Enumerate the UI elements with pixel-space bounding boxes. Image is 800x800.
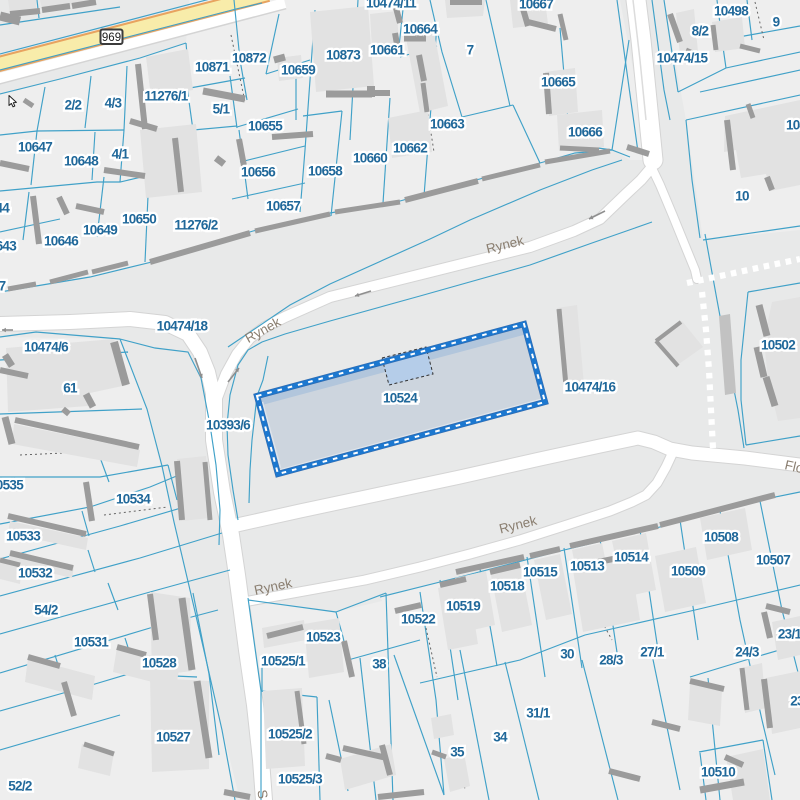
svg-text:10661: 10661 xyxy=(370,43,405,58)
svg-text:10873: 10873 xyxy=(326,48,361,63)
svg-text:10649: 10649 xyxy=(83,223,117,238)
svg-text:10646: 10646 xyxy=(44,234,79,249)
svg-text:10533: 10533 xyxy=(6,529,41,544)
svg-text:10525/3: 10525/3 xyxy=(278,772,323,787)
svg-text:10474/11: 10474/11 xyxy=(366,0,417,11)
svg-text:10650: 10650 xyxy=(122,212,156,227)
svg-text:23/14: 23/14 xyxy=(778,627,800,642)
svg-text:38: 38 xyxy=(372,657,387,672)
svg-text:7: 7 xyxy=(0,279,6,294)
svg-text:10474/16: 10474/16 xyxy=(565,380,617,395)
svg-text:10527: 10527 xyxy=(156,730,190,745)
svg-text:10: 10 xyxy=(735,189,749,204)
svg-text:11276/2: 11276/2 xyxy=(174,218,217,233)
svg-text:10656: 10656 xyxy=(241,165,276,180)
svg-text:10495: 10495 xyxy=(786,118,800,133)
svg-text:4/1: 4/1 xyxy=(112,147,130,162)
svg-text:10474/15: 10474/15 xyxy=(657,51,709,66)
svg-text:10655: 10655 xyxy=(248,119,283,134)
svg-text:10660: 10660 xyxy=(353,151,387,166)
svg-text:10658: 10658 xyxy=(308,164,343,179)
svg-text:10531: 10531 xyxy=(74,635,109,650)
svg-text:10643: 10643 xyxy=(0,239,17,254)
svg-text:10513: 10513 xyxy=(570,559,605,574)
svg-text:10515: 10515 xyxy=(523,565,558,580)
svg-text:10648: 10648 xyxy=(64,154,99,169)
svg-text:10532: 10532 xyxy=(18,566,52,581)
svg-text:54/2: 54/2 xyxy=(34,603,58,618)
svg-text:10524: 10524 xyxy=(383,391,418,406)
svg-text:10528: 10528 xyxy=(142,656,177,671)
svg-text:10523: 10523 xyxy=(306,630,341,645)
svg-text:27/1: 27/1 xyxy=(640,645,665,660)
svg-text:7: 7 xyxy=(467,43,474,58)
svg-text:10665: 10665 xyxy=(541,75,576,90)
svg-text:10474/6: 10474/6 xyxy=(24,340,69,355)
svg-text:9: 9 xyxy=(773,15,780,30)
svg-text:34: 34 xyxy=(493,730,508,745)
svg-text:10498: 10498 xyxy=(714,4,749,19)
svg-text:10502: 10502 xyxy=(761,338,795,353)
svg-text:10666: 10666 xyxy=(568,125,603,140)
svg-text:10522: 10522 xyxy=(401,612,435,627)
svg-text:10663: 10663 xyxy=(430,117,465,132)
svg-text:8/2: 8/2 xyxy=(692,24,709,39)
svg-text:10872: 10872 xyxy=(232,51,266,66)
svg-text:31/1: 31/1 xyxy=(526,706,551,721)
svg-text:24/3: 24/3 xyxy=(735,645,760,660)
svg-text:969: 969 xyxy=(102,32,121,44)
svg-text:30: 30 xyxy=(560,647,574,662)
svg-text:28/3: 28/3 xyxy=(599,653,624,668)
svg-text:10647: 10647 xyxy=(18,140,52,155)
svg-text:10644: 10644 xyxy=(0,201,10,216)
svg-text:10507: 10507 xyxy=(756,553,790,568)
svg-text:2/2: 2/2 xyxy=(65,98,82,113)
svg-text:23: 23 xyxy=(790,694,800,709)
svg-text:10509: 10509 xyxy=(671,564,705,579)
svg-text:35: 35 xyxy=(450,745,465,760)
svg-text:61: 61 xyxy=(63,381,78,396)
svg-text:10534: 10534 xyxy=(116,492,151,507)
svg-text:10664: 10664 xyxy=(403,22,438,37)
svg-text:10510: 10510 xyxy=(701,765,735,780)
svg-text:4/3: 4/3 xyxy=(105,96,123,111)
svg-text:10657: 10657 xyxy=(266,199,300,214)
svg-text:10659: 10659 xyxy=(281,63,315,78)
svg-text:52/2: 52/2 xyxy=(8,779,32,794)
svg-text:10514: 10514 xyxy=(614,550,649,565)
svg-text:11276/1: 11276/1 xyxy=(144,89,188,104)
svg-text:10662: 10662 xyxy=(393,141,427,156)
svg-text:10871: 10871 xyxy=(195,60,230,75)
svg-text:10535: 10535 xyxy=(0,478,24,493)
svg-text:10667: 10667 xyxy=(519,0,553,12)
svg-text:10474/18: 10474/18 xyxy=(157,319,209,334)
svg-text:10525/2: 10525/2 xyxy=(268,727,312,742)
svg-text:10508: 10508 xyxy=(704,530,739,545)
svg-text:10519: 10519 xyxy=(446,599,480,614)
svg-text:10393/6: 10393/6 xyxy=(206,418,251,433)
svg-text:10525/1: 10525/1 xyxy=(261,654,306,669)
svg-text:10518: 10518 xyxy=(490,579,525,594)
svg-text:5/1: 5/1 xyxy=(213,102,231,117)
